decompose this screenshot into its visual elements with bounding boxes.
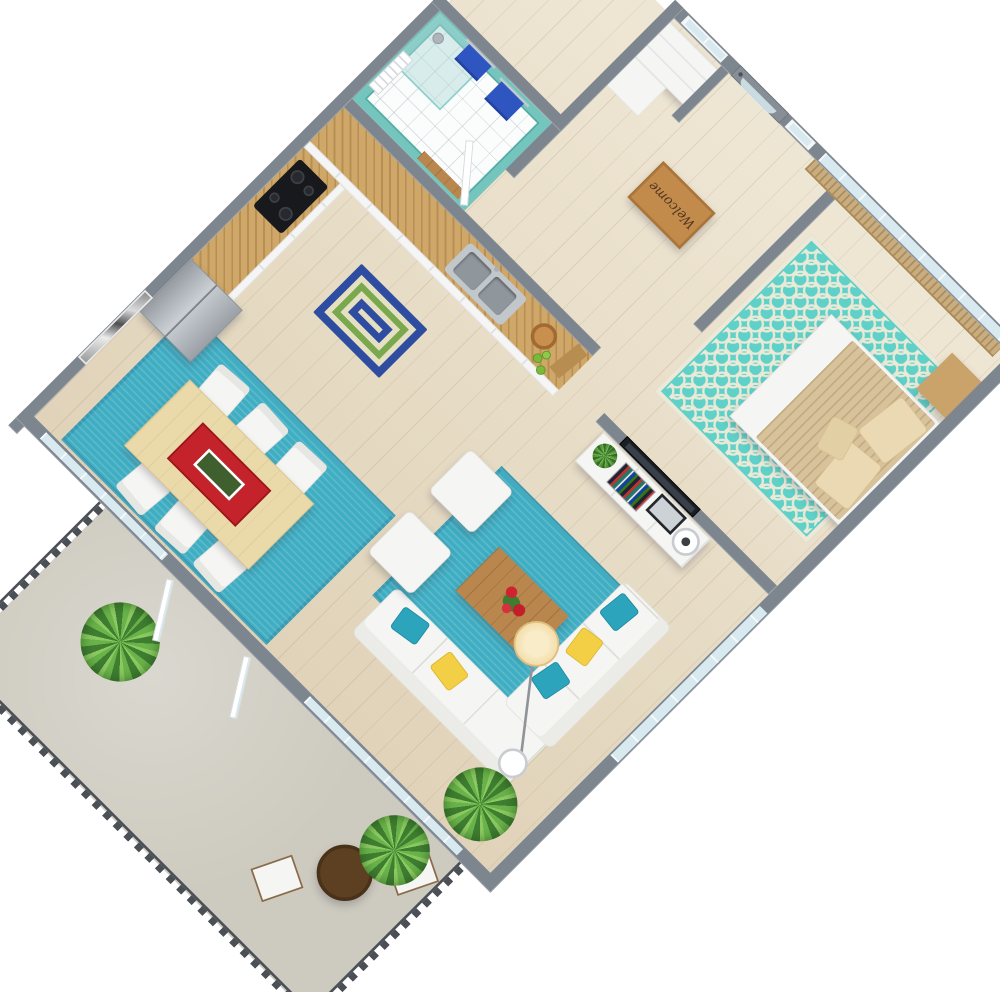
fridge-seam bbox=[164, 285, 218, 339]
apartment-scene: Welcome bbox=[0, 0, 1000, 992]
floor-plan-canvas: Welcome bbox=[0, 0, 1000, 992]
